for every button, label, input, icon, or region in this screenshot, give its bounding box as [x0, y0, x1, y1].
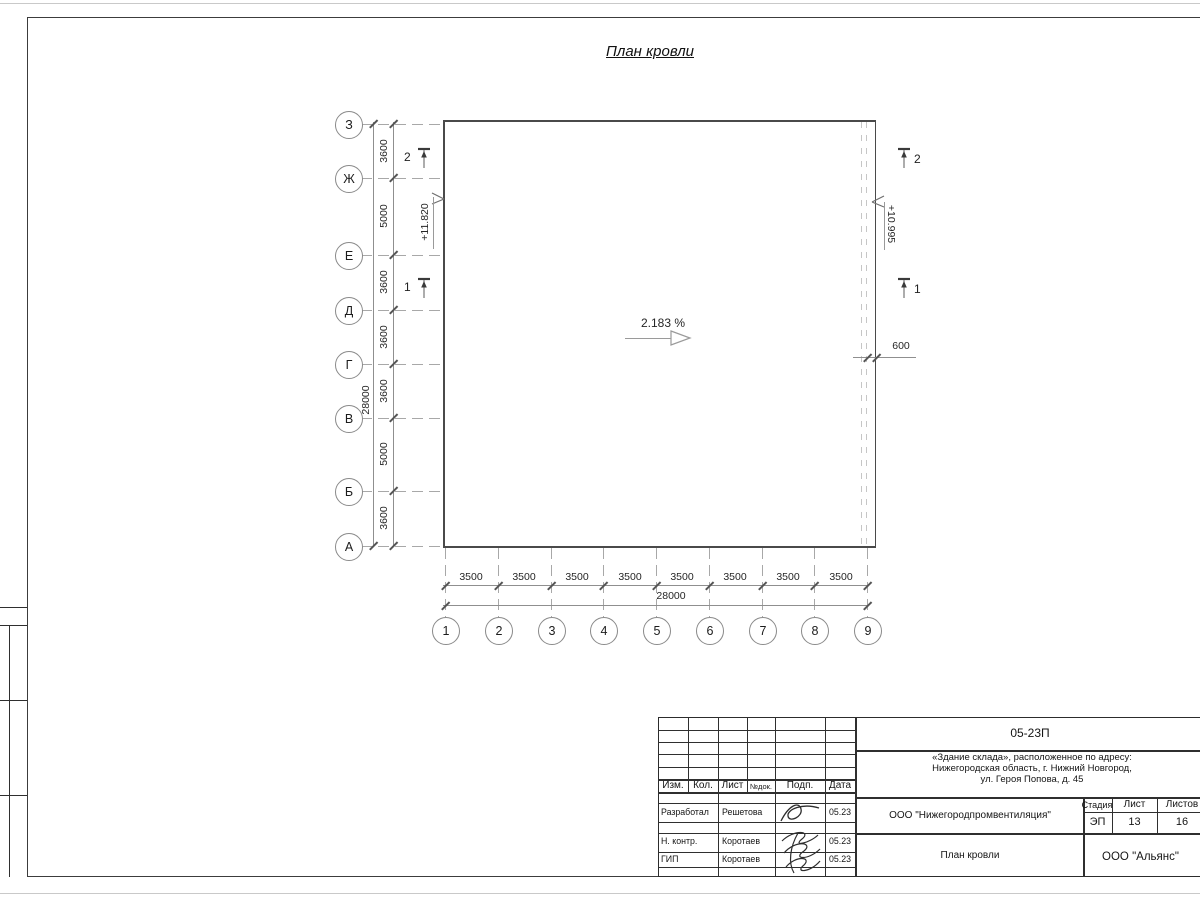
elevation-text: +10.995 [885, 202, 897, 246]
designer-org: ООО "Нижегородпромвентиляция" [860, 810, 1080, 821]
dim-text: 3500 [713, 571, 757, 583]
signature [777, 797, 823, 827]
dim-line [853, 357, 916, 358]
tb-header-podp: Подп. [775, 780, 825, 791]
tb-header-data: Дата [825, 780, 855, 791]
tb-date: 05.23 [825, 807, 855, 817]
drawing-sheet: План кровли 36 [0, 0, 1200, 900]
slope-arrow-line [625, 338, 673, 339]
project-address-line1: «Здание склада», расположенное по адресу… [857, 752, 1200, 763]
tb-name: Коротаев [722, 836, 774, 846]
axis-bubble: 9 [854, 617, 882, 645]
tb-date: 05.23 [825, 836, 855, 846]
dim-line [443, 605, 869, 606]
dim-text: 3600 [378, 315, 390, 359]
axis-bubble: 5 [643, 617, 671, 645]
stage-value: ЭП [1083, 816, 1112, 828]
stage-label: Стадия [1081, 800, 1113, 810]
project-address-line2: Нижегородская область, г. Нижний Новгоро… [857, 763, 1200, 774]
elevation-text: +11.820 [419, 200, 431, 244]
dim-text: 600 [883, 340, 919, 352]
dim-text: 3500 [502, 571, 546, 583]
dim-line [373, 122, 374, 546]
sheets-total-value: 16 [1158, 816, 1200, 828]
tb-role: Разработал [661, 807, 717, 817]
dim-text: 3600 [378, 129, 390, 173]
hidden-wall-line [861, 122, 862, 546]
dim-text: 3500 [819, 571, 863, 583]
tb-header-kol: Кол. [688, 780, 718, 791]
sheets-total-label: Листов [1158, 799, 1200, 810]
tb-role: Н. контр. [661, 836, 717, 846]
dim-text: 5000 [378, 194, 390, 238]
elevation-leader [433, 197, 434, 249]
axis-bubble: В [335, 405, 363, 433]
sheet-no-value: 13 [1112, 816, 1157, 828]
sheet-title: План кровли [860, 850, 1080, 861]
dim-text: 3500 [660, 571, 704, 583]
axis-bubble: Г [335, 351, 363, 379]
section-mark-label: 2 [404, 150, 411, 164]
hidden-wall-line [866, 122, 867, 546]
page-title: План кровли [540, 43, 760, 60]
dim-text: 3500 [608, 571, 652, 583]
dim-text: 3600 [378, 369, 390, 413]
section-mark-icon [416, 277, 432, 299]
sheet-edge-bottom [0, 893, 1200, 894]
axis-bubble: Д [335, 297, 363, 325]
axis-bubble: 7 [749, 617, 777, 645]
dim-text: 3600 [378, 496, 390, 540]
axis-bubble: 4 [590, 617, 618, 645]
doc-code: 05-23П [855, 726, 1200, 740]
project-address-line3: ул. Героя Попова, д. 45 [857, 774, 1200, 785]
section-mark-icon [896, 277, 912, 299]
slope-text: 2.183 % [623, 316, 703, 330]
dim-text: 3500 [555, 571, 599, 583]
tb-date: 05.23 [825, 854, 855, 864]
axis-bubble: 3 [538, 617, 566, 645]
axis-bubble: 6 [696, 617, 724, 645]
customer-org: ООО "Альянс" [1063, 851, 1200, 863]
axis-bubble: Ж [335, 165, 363, 193]
axis-bubble: Е [335, 242, 363, 270]
axis-bubble: А [335, 533, 363, 561]
axis-bubble: 8 [801, 617, 829, 645]
section-mark-label: 2 [914, 152, 921, 166]
axis-bubble: 2 [485, 617, 513, 645]
dim-text: 5000 [378, 432, 390, 476]
dim-text: 3500 [766, 571, 810, 583]
signature [776, 827, 824, 875]
section-mark-label: 1 [404, 280, 411, 294]
axis-bubble: 1 [432, 617, 460, 645]
section-mark-icon [896, 147, 912, 169]
tb-header-izm: Изм. [658, 780, 688, 791]
tb-role: ГИП [661, 854, 717, 864]
axis-bubble: Б [335, 478, 363, 506]
roof-outline [443, 120, 876, 548]
dim-line [393, 122, 394, 546]
section-mark-icon [416, 147, 432, 169]
sheet-edge-top [0, 3, 1200, 4]
tb-header-ndok: №док. [747, 782, 775, 791]
dim-text: 3500 [449, 571, 493, 583]
tb-name: Коротаев [722, 854, 774, 864]
section-mark-label: 1 [914, 282, 921, 296]
tb-header-list: Лист [718, 780, 747, 791]
tb-name: Решетова [722, 807, 774, 817]
sheet-no-label: Лист [1112, 799, 1157, 810]
dim-total-text: 28000 [649, 590, 693, 602]
dim-text: 3600 [378, 260, 390, 304]
axis-bubble: З [335, 111, 363, 139]
slope-arrow-icon [670, 329, 692, 347]
